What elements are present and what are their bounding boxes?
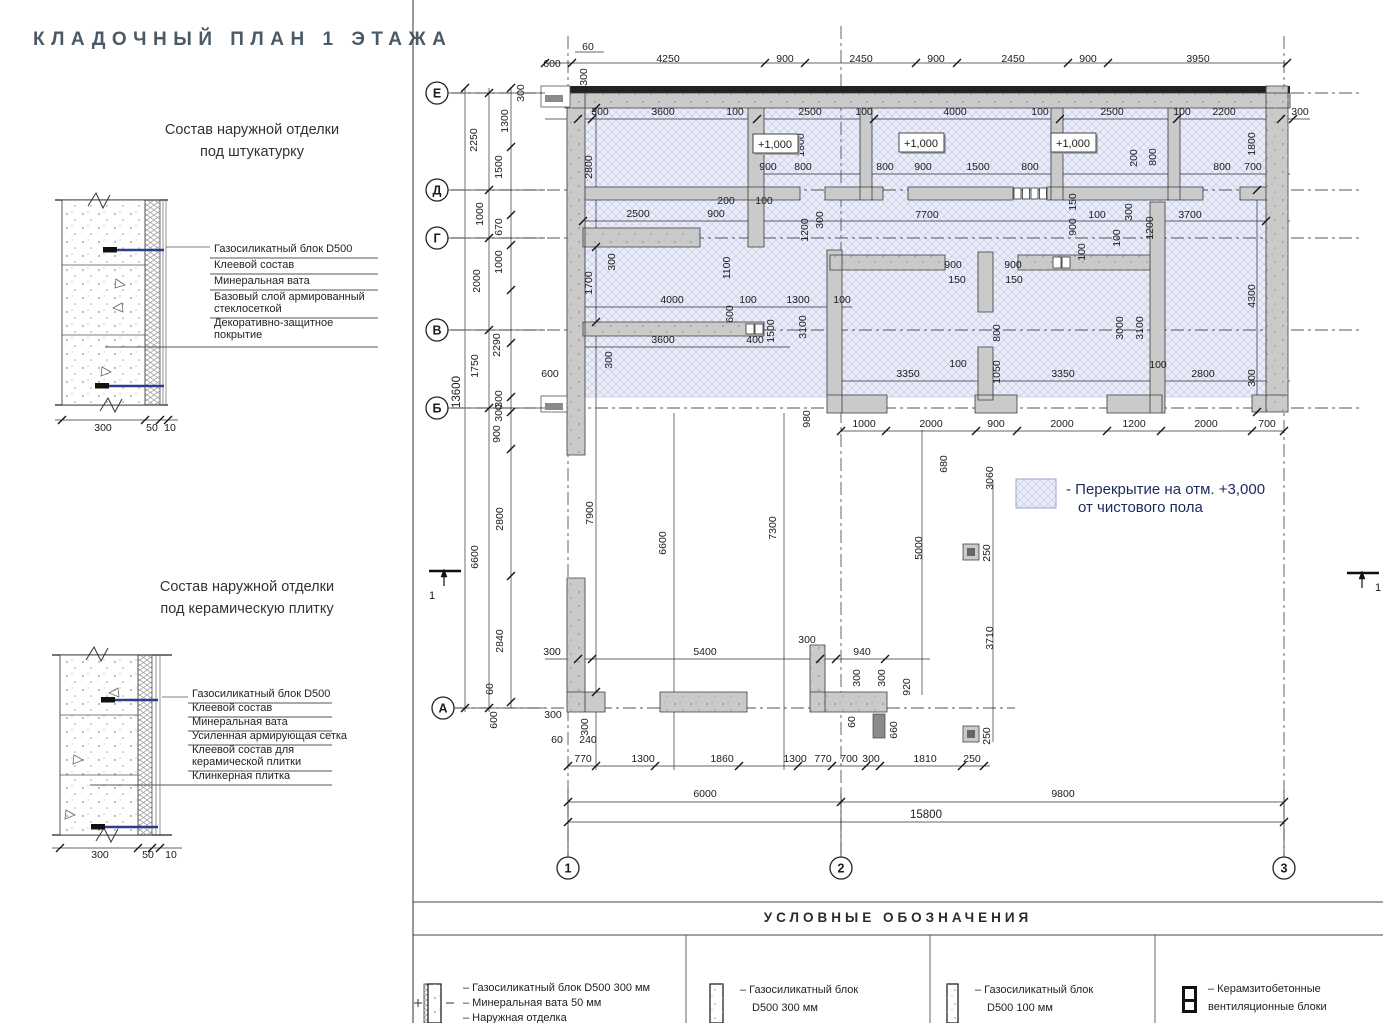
dimension-label: 2000 (471, 269, 483, 293)
dimension-label: 100 (949, 358, 967, 370)
dimension-label: 600 (488, 711, 500, 729)
dimension-label: 1860 (710, 753, 734, 765)
dimension-label: 60 (551, 734, 563, 746)
dimension-label: 150 (1067, 193, 1079, 211)
dimension-label: 6000 (693, 788, 717, 800)
level-label: +1,000 (1056, 138, 1090, 150)
dimension-label: 900 (914, 161, 932, 173)
legend-item-label: – Минеральная вата 50 мм (463, 997, 601, 1009)
material-layer-label: Клеевой состав (214, 259, 294, 271)
dimension-label: 300 (579, 718, 591, 736)
level-label: +1,000 (758, 139, 792, 151)
slab-note-line1: - Перекрытие на отм. +3,000 (1066, 481, 1265, 498)
dimension-label: 1100 (721, 257, 733, 280)
dimension-label: 3600 (651, 106, 675, 118)
dimension-label: 250 (963, 753, 981, 765)
detail-b-title-line1: Состав наружной отделки (160, 579, 334, 595)
dimension-label: 7700 (915, 209, 939, 221)
material-layer-label: Базовый слой армированный (214, 291, 365, 303)
dimension-label: 100 (755, 195, 773, 207)
dimension-label: 700 (1244, 161, 1262, 173)
dimension-label: 1300 (631, 753, 655, 765)
dimension-label: 4000 (660, 294, 684, 306)
grid-bubble-label: Е (433, 87, 441, 101)
grid-bubble-label: Б (433, 402, 442, 416)
dimension-label: 3600 (651, 334, 675, 346)
dimension-label: 770 (574, 753, 592, 765)
dimension-label: 940 (853, 646, 871, 658)
material-layer-label: Усиленная армирующая сетка (192, 730, 348, 742)
exterior-wall-top-finish (565, 86, 1290, 93)
dimension-label: 770 (814, 753, 832, 765)
dimension-label: 3700 (1178, 209, 1202, 221)
dimension-label: 1000 (493, 250, 505, 274)
page-title: КЛАДОЧНЫЙ ПЛАН 1 ЭТАЖА (33, 28, 452, 50)
dimension-label: 2450 (849, 53, 873, 65)
dimension-label: 150 (1005, 274, 1023, 286)
dimension-label: 4300 (1246, 284, 1258, 308)
dimension-label: 1800 (1246, 132, 1258, 156)
masonry-plan-drawing: КЛАДОЧНЫЙ ПЛАН 1 ЭТАЖА Состав наружной о… (0, 0, 1383, 1023)
dimension-label: 1200 (799, 218, 811, 242)
dimension-label: 2840 (494, 629, 506, 653)
dimension-label: 100 (739, 294, 757, 306)
dimension-label: 900 (987, 418, 1005, 430)
dimension-label: 900 (776, 53, 794, 65)
material-layer-label: Клеевой состав (192, 702, 272, 714)
dimension-label: 300 (603, 351, 615, 369)
dimension-label: 4250 (656, 53, 680, 65)
dimension-label: 300 (876, 669, 888, 687)
dimension-label: 1000 (852, 418, 876, 430)
dimension-label: 60 (846, 716, 858, 728)
grid-bubble-label: Д (433, 184, 442, 198)
dimension-label: 2500 (798, 106, 822, 118)
legend-item-label: – Наружная отделка (463, 1012, 568, 1023)
dimension-label: 5000 (913, 536, 925, 560)
detail-dimension-label: 50 (142, 849, 154, 861)
left-panel: КЛАДОЧНЫЙ ПЛАН 1 ЭТАЖА Состав наружной о… (33, 28, 452, 852)
dimension-label: 3350 (1051, 368, 1075, 380)
dimension-label: 300 (862, 753, 880, 765)
dimension-label: 800 (1213, 161, 1231, 173)
dimension-label: 700 (1258, 418, 1276, 430)
dimension-label: 1300 (783, 753, 807, 765)
dimension-label: 2500 (1100, 106, 1124, 118)
dimension-label: 1750 (469, 354, 481, 378)
dimension-label: 3100 (1134, 316, 1146, 340)
dimension-label: 300 (606, 253, 618, 271)
dimension-label: 5400 (693, 646, 717, 658)
dimension-label: 300 (798, 634, 816, 646)
dimension-label: 700 (840, 753, 858, 765)
detail-dimension-label: 300 (94, 422, 112, 434)
dimension-label: 200 (1128, 149, 1140, 167)
slab-note-line2: от чистового пола (1078, 499, 1203, 516)
material-layer-label: стеклосеткой (214, 303, 282, 315)
dimension-label: 300 (814, 211, 826, 229)
dimension-label: 800 (991, 324, 1003, 342)
dimension-label: 2000 (919, 418, 943, 430)
dimension-label: 2000 (1050, 418, 1074, 430)
dimension-label: 2200 (1212, 106, 1236, 118)
dimension-label: 3000 (1114, 316, 1126, 340)
legend-item-label: – Газосиликатный блок (975, 984, 1093, 996)
material-layer-label: покрытие (214, 329, 262, 341)
detail-dimension-label: 50 (146, 422, 158, 434)
dimension-label: 2290 (491, 333, 503, 357)
dimension-label: 600 (543, 58, 561, 70)
legend-item-label: – Газосиликатный блок D500 300 мм (463, 982, 650, 994)
dimension-label: 13600 (451, 376, 463, 408)
dimension-label: 1500 (493, 155, 505, 179)
grid-bubble-label: Г (433, 232, 440, 246)
dimension-label: 2800 (583, 155, 595, 179)
dimension-label: 600 (724, 305, 736, 323)
dimension-label: 100 (833, 294, 851, 306)
material-layer-label: Газосиликатный блок D500 (214, 243, 352, 255)
material-layer-label: Газосиликатный блок D500 (192, 688, 330, 700)
legend-item-label: D500 300 мм (752, 1002, 818, 1014)
dimension-label: 100 (726, 106, 744, 118)
dimension-label: 7900 (584, 501, 596, 525)
dimension-label: 1300 (499, 109, 511, 133)
dimension-label: 1300 (786, 294, 810, 306)
dimension-label: 60 (484, 683, 496, 695)
dimension-label: 100 (1149, 359, 1167, 371)
dimension-label: 9800 (1051, 788, 1075, 800)
dimension-label: 300 (578, 68, 590, 86)
material-layer-label: Клеевой состав для (192, 744, 294, 756)
material-layer-label: Минеральная вата (192, 716, 289, 728)
dimension-label: 3100 (797, 315, 809, 339)
section-number: 1 (1375, 582, 1381, 594)
legend-item-label: D500 100 мм (987, 1002, 1053, 1014)
dimension-label: 3710 (984, 626, 996, 650)
dimension-label: 2800 (1191, 368, 1215, 380)
dimension-label: 680 (938, 455, 950, 473)
dimension-label: 1200 (1122, 418, 1146, 430)
grid-bubble-label: 3 (1281, 862, 1288, 876)
dimension-label: 300 (544, 709, 562, 721)
detail-a-title-line1: Состав наружной отделки (165, 122, 339, 138)
dimension-label: 60 (582, 41, 594, 53)
dimension-label: 900 (759, 161, 777, 173)
dimension-label: 800 (1147, 148, 1159, 166)
material-layer-label: Минеральная вата (214, 275, 311, 287)
dimension-label: 1500 (966, 161, 990, 173)
dimension-label: 660 (888, 721, 900, 739)
dimension-label: 7300 (767, 516, 779, 540)
legend-item-label: – Керамзитобетонные (1208, 983, 1321, 995)
dimension-label: 800 (794, 161, 812, 173)
dimension-label: 1000 (474, 202, 486, 226)
dimension-label: 670 (493, 218, 505, 236)
dimension-label: 800 (1021, 161, 1039, 173)
dimension-label: 1700 (583, 271, 595, 295)
material-layer-label: Клинкерная плитка (192, 770, 291, 782)
dimension-label: 1050 (991, 360, 1003, 384)
dimension-label: 3350 (896, 368, 920, 380)
grid-bubble-label: В (432, 324, 441, 338)
dimension-label: 15800 (910, 809, 942, 821)
dimension-label: 4000 (943, 106, 967, 118)
dimension-label: 900 (927, 53, 945, 65)
dimension-label: 300 (851, 669, 863, 687)
dimension-label: 300 (1291, 106, 1309, 118)
dimension-label: 400 (746, 334, 764, 346)
legend-title: УСЛОВНЫЕ ОБОЗНАЧЕНИЯ (764, 910, 1033, 925)
dimension-label: 100 (1031, 106, 1049, 118)
grid-bubble-label: 2 (838, 862, 845, 876)
dimension-label: 600 (541, 368, 559, 380)
legend-item-label: вентиляционные блоки (1208, 1001, 1327, 1013)
dimension-label: 900 (707, 208, 725, 220)
material-layer-label: Декоративно-защитное (214, 317, 333, 329)
dimension-label: 2450 (1001, 53, 1025, 65)
detail-dimension-label: 10 (165, 849, 177, 861)
dimension-label: 980 (801, 410, 813, 428)
dimension-label: 6600 (657, 531, 669, 555)
detail-dimension-label: 300 (91, 849, 109, 861)
dimension-label: 2800 (494, 507, 506, 531)
legend-icon-wall-layered (424, 984, 428, 1023)
dimension-label: 900 (1004, 259, 1022, 271)
dimension-label: 900 (1079, 53, 1097, 65)
level-label: +1,000 (904, 138, 938, 150)
dimension-label: 300 (1246, 369, 1258, 387)
slab-legend-swatch (1016, 479, 1056, 508)
dimension-label: 2500 (626, 208, 650, 220)
dimension-label: 100 (1076, 243, 1088, 261)
dimension-label: 900 (1067, 218, 1079, 236)
dimension-label: 3060 (984, 466, 996, 490)
dimension-label: 920 (901, 678, 913, 696)
detail-b-title-line2: под керамическую плитку (160, 601, 334, 617)
section-number: 1 (429, 590, 435, 602)
dimension-label: 100 (855, 106, 873, 118)
dimension-label: 900 (491, 425, 503, 443)
dimension-label: 100 (1088, 209, 1106, 221)
detail-a-title-line2: под штукатурку (200, 144, 305, 160)
dimension-label: 1200 (1144, 216, 1156, 240)
dimension-label: 2000 (1194, 418, 1218, 430)
grid-bubble-label: А (438, 702, 447, 716)
dimension-label: 100 (1111, 229, 1123, 247)
dimension-label: 200 (717, 195, 735, 207)
material-layer-label: керамической плитки (192, 756, 301, 768)
dimension-label: 1810 (913, 753, 937, 765)
dimension-label: 300 (1123, 203, 1135, 221)
dimension-label: 250 (981, 544, 993, 562)
dimension-label: 300 (543, 646, 561, 658)
dimension-label: 1500 (765, 319, 777, 343)
dimension-label: 3950 (1186, 53, 1210, 65)
dimension-label: 250 (981, 727, 993, 745)
dimension-label: 800 (876, 161, 894, 173)
dimension-label: 900 (944, 259, 962, 271)
legend-icon-vent-block (1182, 986, 1197, 1013)
dimension-label: 6600 (469, 545, 481, 569)
dimension-label: 2250 (468, 128, 480, 152)
dimension-label: 150 (948, 274, 966, 286)
detail-dimension-label: 10 (164, 422, 176, 434)
legend-item-label: – Газосиликатный блок (740, 984, 858, 996)
grid-bubble-label: 1 (565, 862, 572, 876)
dimension-label: 300 (493, 404, 505, 422)
dimension-label: 100 (1173, 106, 1191, 118)
